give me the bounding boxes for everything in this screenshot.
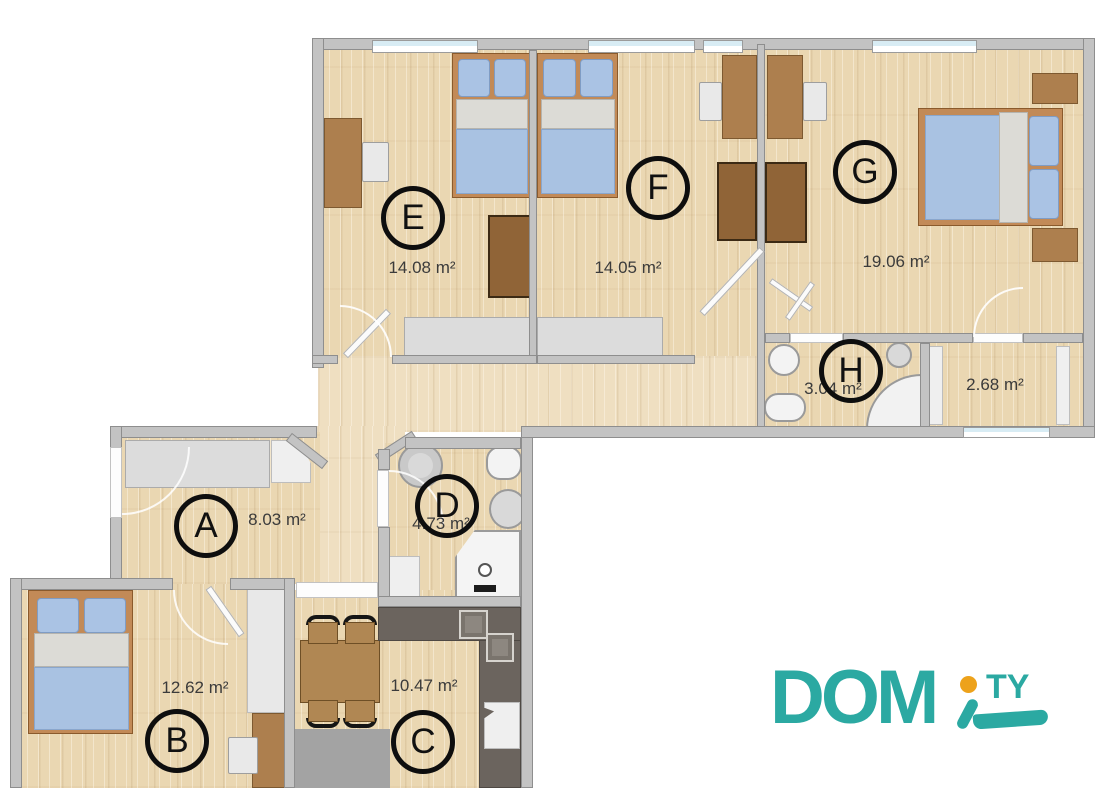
pillow: [580, 59, 613, 97]
desk-chair-f: [699, 82, 722, 121]
window: [703, 40, 743, 53]
wall: [537, 355, 695, 364]
bed-blanket: [456, 99, 528, 129]
wall: [405, 437, 521, 449]
window: [372, 40, 478, 53]
fridge: [484, 702, 520, 749]
pillow: [494, 59, 526, 97]
wall: [378, 527, 390, 600]
bed-blanket: [34, 633, 129, 667]
desk-chair-g: [803, 82, 827, 121]
desk-chair-b: [228, 737, 258, 774]
toilet-d: [486, 446, 522, 480]
floor-plan: E F G H A D B C 14.08 m² 14.05 m² 19.06 …: [0, 0, 1100, 788]
wall: [284, 578, 295, 788]
closet-panel-right: [1056, 346, 1070, 425]
dining-chair-seat: [308, 700, 338, 722]
shower-fitting-base: [474, 585, 496, 592]
logo-underline-swoosh: [973, 709, 1049, 729]
desk-g: [767, 55, 803, 139]
logo-i-dot-icon: [960, 676, 977, 693]
pillow: [84, 598, 126, 633]
wall: [392, 355, 537, 364]
sink-h: [768, 344, 800, 376]
room-area-g: 19.06 m²: [862, 252, 929, 272]
double-bed-b: [28, 590, 133, 734]
wall: [521, 437, 533, 788]
entrance-door: [110, 447, 122, 518]
wall: [529, 50, 537, 364]
desk-chair-e: [362, 142, 389, 182]
shower-fitting-icon: [478, 563, 492, 577]
bed-duvet: [925, 115, 1001, 220]
kitchen-rug: [293, 729, 390, 788]
wall: [1083, 38, 1095, 438]
room-badge-f: F: [626, 156, 690, 220]
room-badge-h: H: [819, 339, 883, 403]
pillow: [1029, 169, 1059, 219]
bed-duvet: [34, 667, 129, 730]
wall: [378, 449, 390, 470]
wall: [920, 343, 930, 432]
wall: [230, 578, 290, 590]
double-bed-g: [918, 108, 1063, 226]
room-badge-b: B: [145, 709, 209, 773]
wall: [757, 44, 765, 438]
table-f: [717, 162, 757, 241]
closet-panel-left: [929, 346, 943, 425]
doorway-c: [296, 582, 378, 598]
toilet-h: [764, 393, 806, 422]
room-badge-a: A: [174, 494, 238, 558]
domity-logo: DOM TY: [770, 660, 1080, 760]
dining-chair-seat: [345, 700, 375, 722]
sideboard-f: [537, 317, 663, 356]
room-badge-e: E: [381, 186, 445, 250]
door-h: [790, 333, 843, 343]
corridor-floor: [318, 356, 757, 432]
wall: [765, 333, 790, 343]
kitchen-sink-2: [486, 633, 514, 662]
window: [872, 40, 977, 53]
pillow: [543, 59, 576, 97]
wall: [10, 578, 22, 788]
dining-chair-seat: [345, 622, 375, 644]
room-area-a: 8.03 m²: [248, 510, 306, 530]
nightstand-g-bottom: [1032, 228, 1078, 262]
door-d: [377, 470, 389, 527]
shelf-b: [247, 588, 288, 713]
room-area-f: 14.05 m²: [594, 258, 661, 278]
room-badge-d: D: [415, 474, 479, 538]
side-table-e: [488, 215, 531, 298]
nightstand-g-top: [1032, 73, 1078, 104]
wall: [312, 38, 324, 368]
bed-blanket: [541, 99, 615, 129]
room-area-b: 12.62 m²: [161, 678, 228, 698]
faucet-h: [886, 342, 912, 368]
double-bed-f: [537, 53, 618, 198]
logo-text-ty: TY: [986, 668, 1029, 707]
wall: [110, 426, 317, 438]
room-badge-c: C: [391, 710, 455, 774]
logo-text-dom: DOM: [770, 654, 935, 741]
wall: [312, 355, 338, 364]
table-g: [765, 162, 807, 243]
double-bed-e: [452, 53, 531, 198]
pillow: [37, 598, 79, 633]
bed-duvet: [456, 129, 528, 194]
room-area-closet: 2.68 m²: [966, 375, 1024, 395]
desk-e: [324, 118, 362, 208]
dining-table: [300, 640, 380, 703]
wall: [10, 578, 173, 590]
desk-f: [722, 55, 757, 139]
pillow: [458, 59, 490, 97]
wall: [1023, 333, 1083, 343]
room-area-e: 14.08 m²: [388, 258, 455, 278]
room-badge-g: G: [833, 140, 897, 204]
bed-duvet: [541, 129, 615, 194]
kitchen-sink-1: [459, 610, 488, 639]
window: [588, 40, 695, 53]
sideboard-e: [404, 317, 531, 356]
dining-chair-seat: [308, 622, 338, 644]
window: [963, 427, 1050, 438]
wall: [378, 596, 521, 607]
bed-blanket: [999, 112, 1028, 223]
room-area-c: 10.47 m²: [390, 676, 457, 696]
pillow: [1029, 116, 1059, 166]
